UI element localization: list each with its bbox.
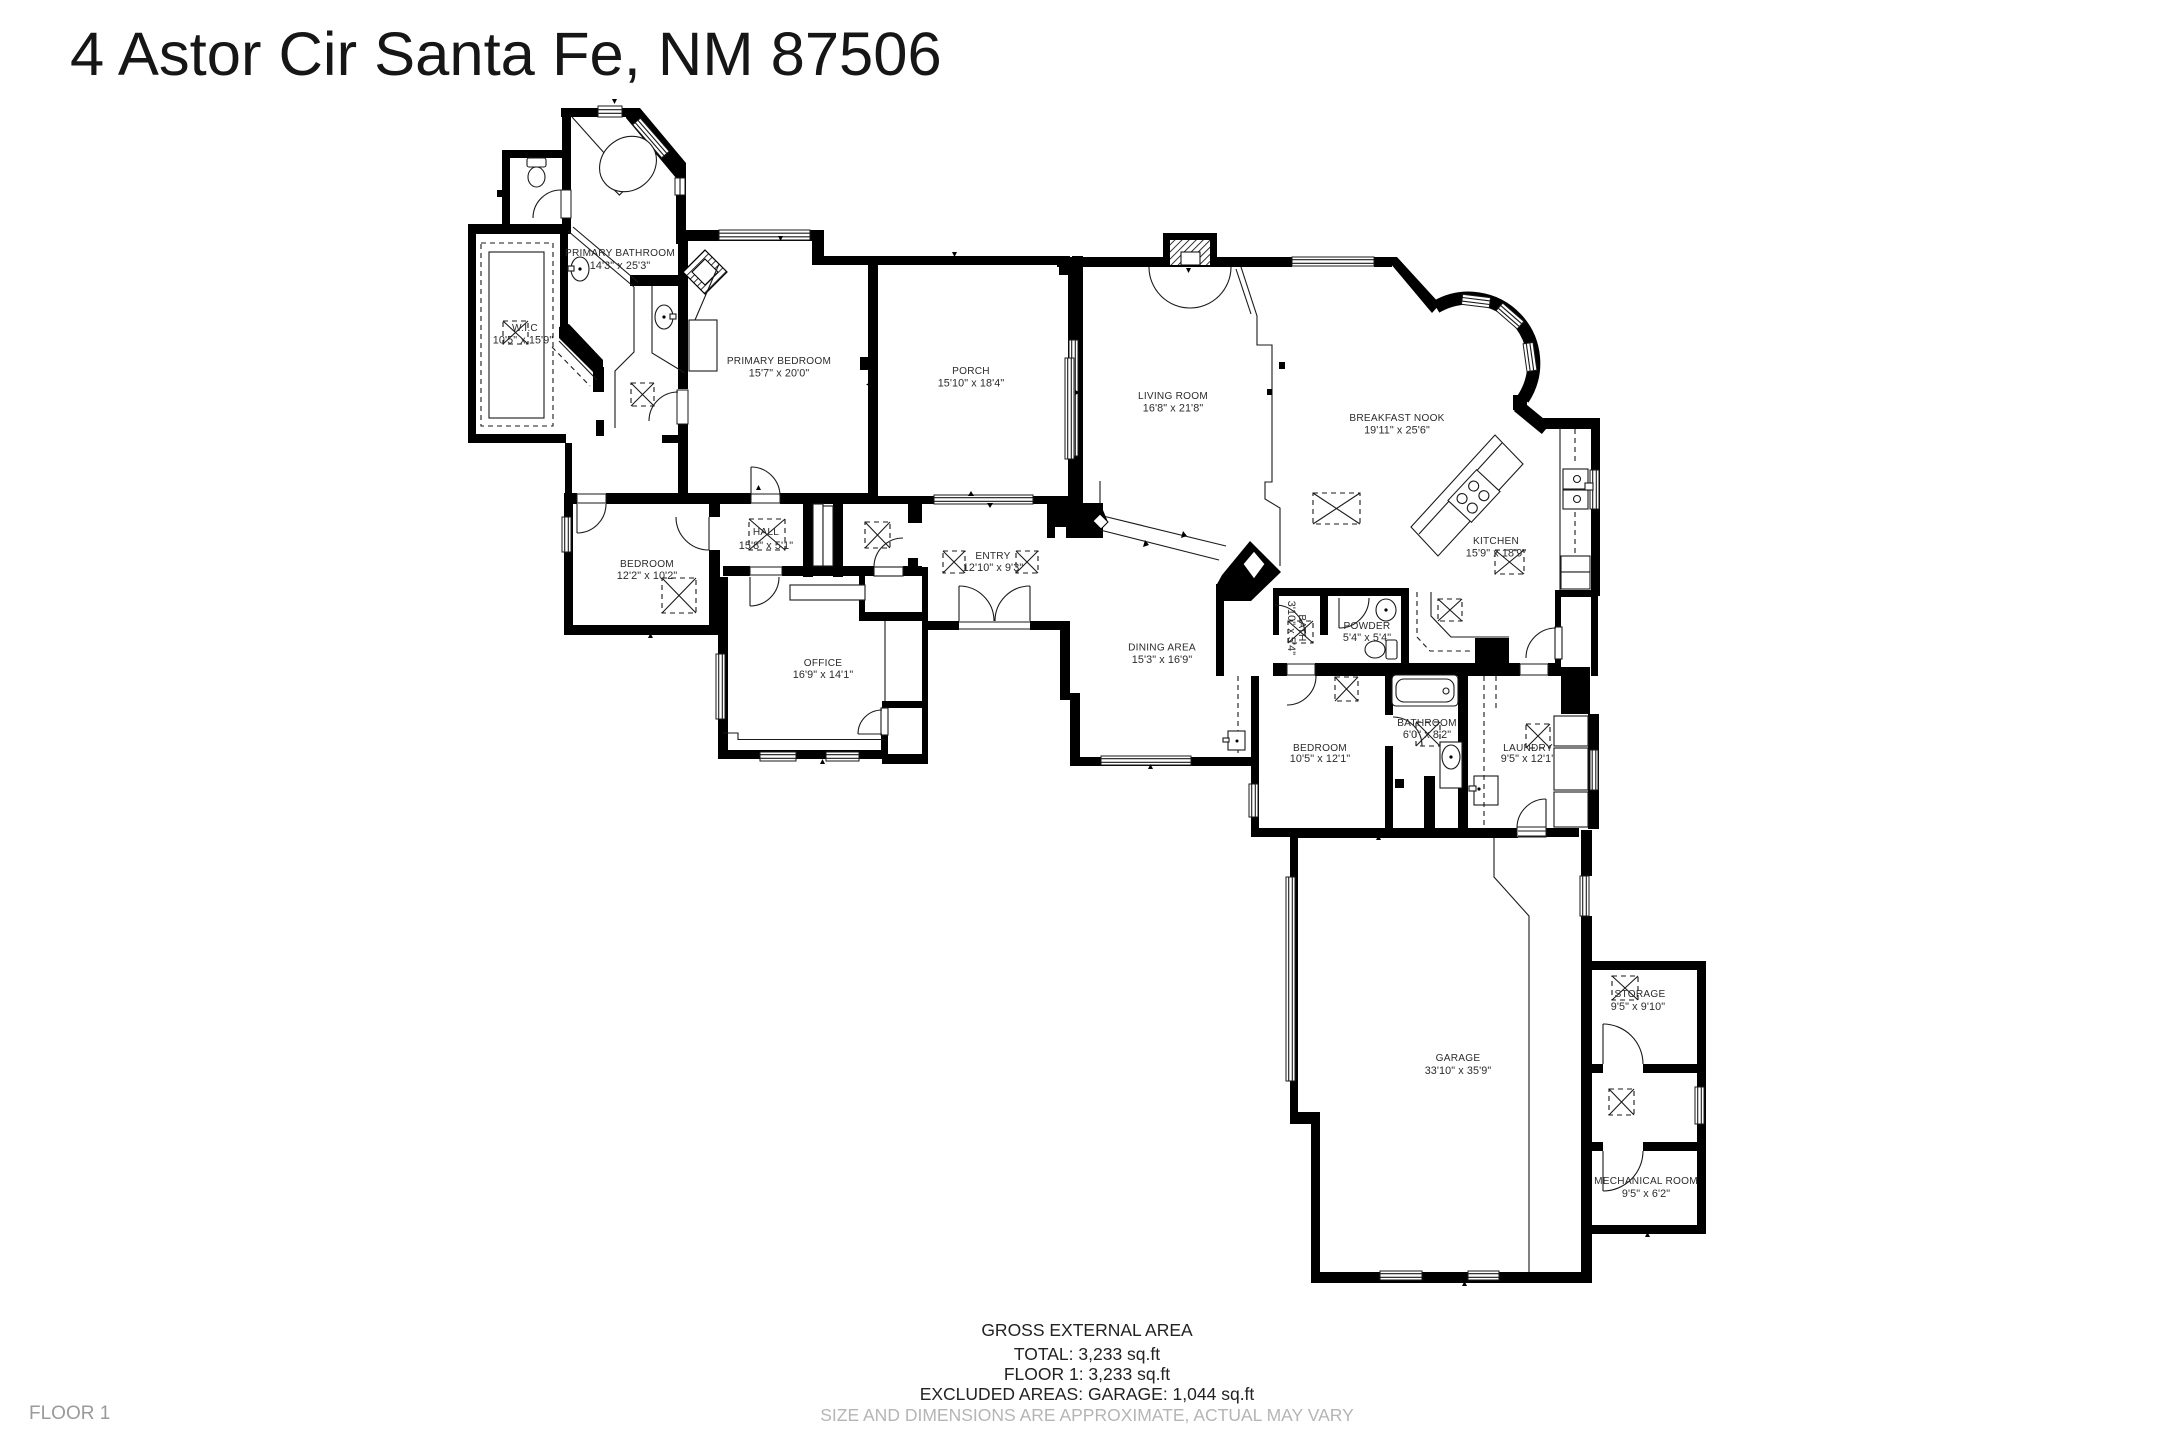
svg-text:MECHANICAL ROOM: MECHANICAL ROOM [1594,1176,1698,1187]
svg-text:KITCHEN: KITCHEN [1473,536,1519,547]
svg-text:PORCH: PORCH [952,366,990,377]
svg-text:4 Astor Cir Santa Fe, NM 87506: 4 Astor Cir Santa Fe, NM 87506 [70,20,942,89]
svg-text:SIZE AND DIMENSIONS ARE APPROX: SIZE AND DIMENSIONS ARE APPROXIMATE, ACT… [820,1405,1354,1425]
svg-text:16'9" x 14'1": 16'9" x 14'1" [793,669,854,681]
svg-text:TOTAL: 3,233 sq.ft: TOTAL: 3,233 sq.ft [1014,1344,1160,1364]
svg-text:15'10" x 18'4": 15'10" x 18'4" [938,378,1005,390]
svg-text:ENTRY: ENTRY [975,551,1010,562]
svg-text:9'5" x 9'10": 9'5" x 9'10" [1611,1001,1665,1013]
svg-text:19'11" x 25'6": 19'11" x 25'6" [1364,425,1430,437]
svg-text:9'5" x 6'2": 9'5" x 6'2" [1622,1188,1670,1200]
svg-text:W.I.C: W.I.C [512,323,538,334]
svg-text:9'5" x 12'1": 9'5" x 12'1" [1501,753,1555,765]
svg-text:FLOOR 1: 3,233 sq.ft: FLOOR 1: 3,233 sq.ft [1004,1364,1170,1384]
svg-text:PRIMARY BATHROOM: PRIMARY BATHROOM [565,248,675,259]
svg-text:POWDER: POWDER [1344,621,1391,632]
svg-text:HALL: HALL [753,527,779,538]
svg-text:GARAGE: GARAGE [1436,1053,1481,1064]
svg-text:10'5" x 12'1": 10'5" x 12'1" [1290,753,1351,765]
svg-text:15'3" x 16'9": 15'3" x 16'9" [1132,654,1193,666]
svg-text:BREAKFAST NOOK: BREAKFAST NOOK [1349,413,1444,424]
svg-text:16'8" x 21'8": 16'8" x 21'8" [1143,403,1204,415]
svg-text:15'9" x 18'9": 15'9" x 18'9" [1466,548,1527,560]
svg-text:10'5" x 15'9": 10'5" x 15'9" [493,335,554,347]
svg-text:EXCLUDED AREAS: GARAGE: 1,044: EXCLUDED AREAS: GARAGE: 1,044 sq.ft [920,1384,1255,1404]
svg-text:33'10" x 35'9": 33'10" x 35'9" [1425,1065,1492,1077]
svg-text:3'10" x 5'4": 3'10" x 5'4" [1285,601,1297,655]
svg-text:DINING AREA: DINING AREA [1128,643,1196,654]
svg-text:STORAGE: STORAGE [1615,989,1666,1000]
svg-text:15'8" x 5'1": 15'8" x 5'1" [739,540,793,552]
svg-text:6'0" x 8'2": 6'0" x 8'2" [1403,729,1451,741]
svg-text:14'3" x 25'3": 14'3" x 25'3" [590,260,651,272]
svg-text:BEDROOM: BEDROOM [620,559,674,570]
svg-text:OFFICE: OFFICE [804,658,843,669]
svg-text:GROSS EXTERNAL AREA: GROSS EXTERNAL AREA [981,1320,1193,1340]
svg-text:LIVING ROOM: LIVING ROOM [1138,391,1208,402]
svg-text:15'7" x 20'0": 15'7" x 20'0" [749,368,810,380]
svg-text:12'2" x 10'2": 12'2" x 10'2" [617,570,678,582]
svg-text:FLOOR 1: FLOOR 1 [29,1403,110,1424]
svg-text:12'10" x 9'3": 12'10" x 9'3" [963,562,1024,574]
svg-text:5'4" x 5'4": 5'4" x 5'4" [1343,632,1391,644]
svg-text:BATHROOM: BATHROOM [1397,718,1457,729]
svg-text:PRIMARY BEDROOM: PRIMARY BEDROOM [727,356,831,367]
